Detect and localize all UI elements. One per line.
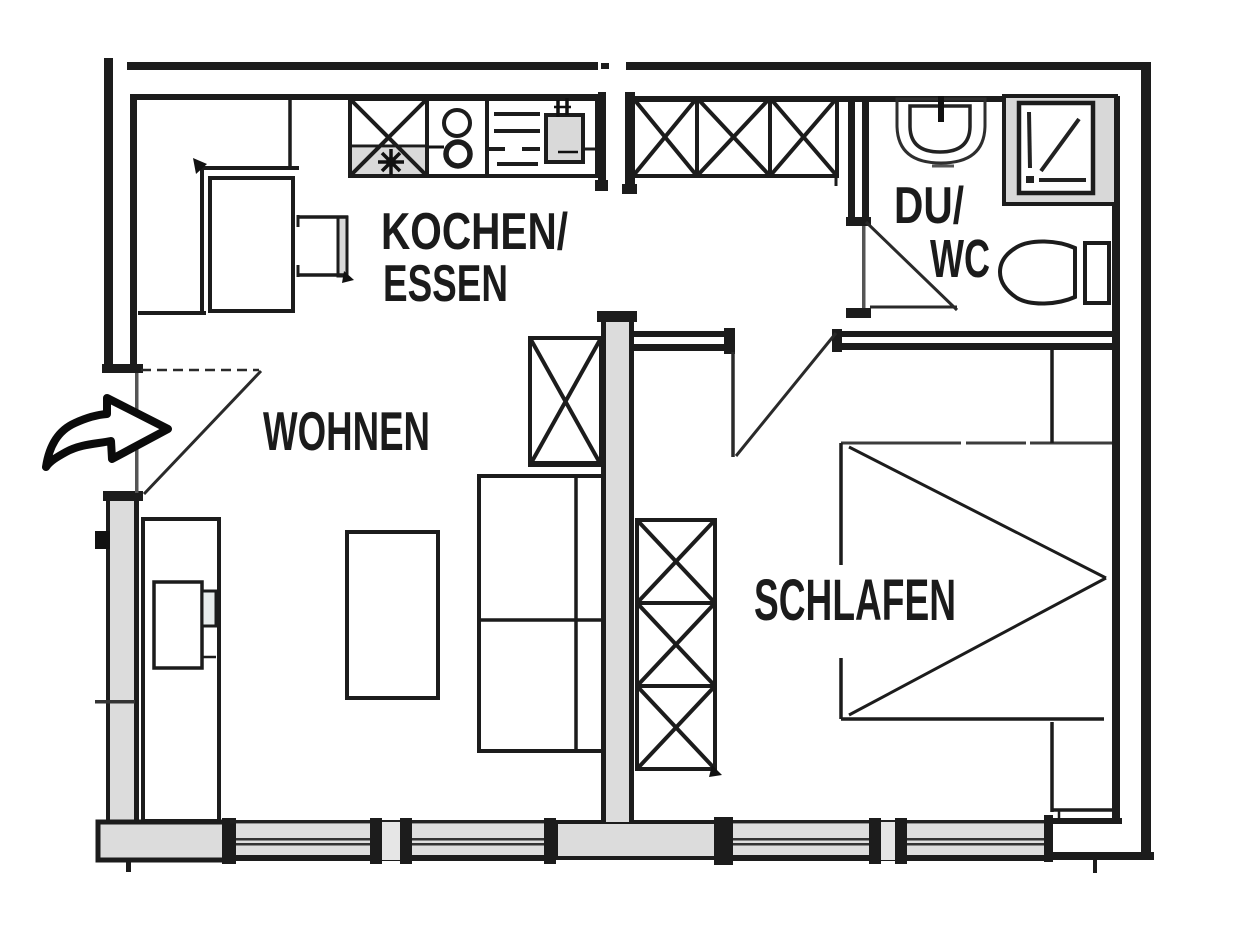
svg-text:DU/: DU/: [894, 177, 964, 235]
svg-text:SCHLAFEN: SCHLAFEN: [754, 568, 956, 633]
svg-text:WC: WC: [930, 229, 990, 289]
svg-text:ESSEN: ESSEN: [383, 255, 508, 313]
svg-text:KOCHEN/: KOCHEN/: [381, 203, 568, 261]
svg-text:WOHNEN: WOHNEN: [263, 400, 430, 462]
